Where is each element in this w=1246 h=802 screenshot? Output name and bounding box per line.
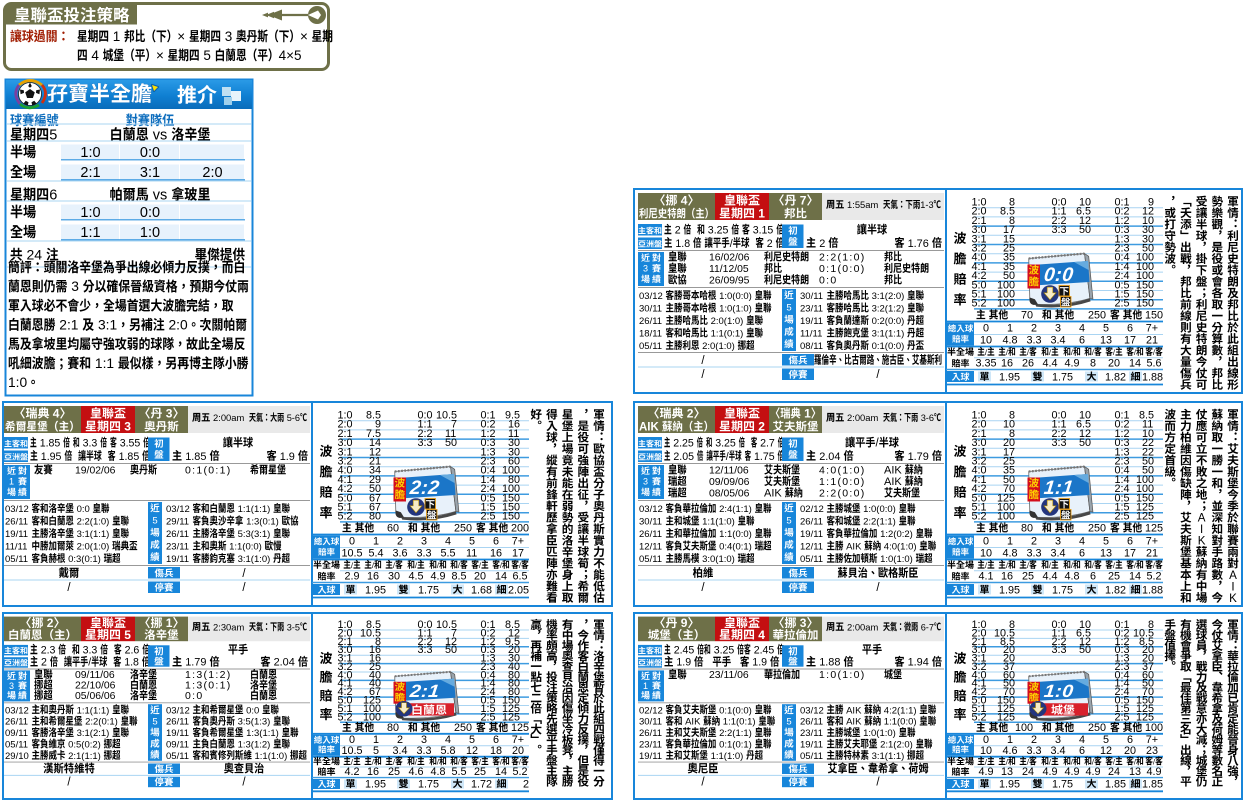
svg-text:5: 5 <box>124 628 131 642</box>
svg-text:1:0(0:0): 1:0(0:0) <box>863 504 896 515</box>
svg-text:26/11: 26/11 <box>800 717 823 728</box>
svg-text:1:1(0:0): 1:1(0:0) <box>819 476 866 488</box>
svg-text:24: 24 <box>27 247 43 263</box>
svg-text:3: 3 <box>1055 536 1061 548</box>
svg-text:4: 4 <box>445 536 451 548</box>
svg-text:03/12: 03/12 <box>639 504 663 515</box>
svg-text:3.3: 3.3 <box>83 438 98 450</box>
svg-text:3:3: 3:3 <box>1052 644 1067 656</box>
svg-text:2:4(1:1): 2:4(1:1) <box>719 504 752 515</box>
svg-text:50: 50 <box>1079 644 1091 656</box>
svg-text:1.76: 1.76 <box>908 238 929 250</box>
svg-text:1:1(1:0): 1:1(1:0) <box>702 517 735 528</box>
svg-text:2: 2 <box>819 238 825 250</box>
svg-text:5: 5 <box>152 717 157 728</box>
svg-text:2:00am: 2:00am <box>847 621 878 632</box>
svg-text:5: 5 <box>1103 536 1109 548</box>
svg-text:60: 60 <box>387 523 399 535</box>
svg-text:3: 3 <box>9 681 14 691</box>
svg-text:0:1(0:1): 0:1(0:1) <box>719 740 752 751</box>
svg-text:1:0: 1:0 <box>1043 681 1075 701</box>
svg-text:0: 0 <box>349 536 355 548</box>
svg-text:AIK: AIK <box>884 465 902 477</box>
svg-text:02/12: 02/12 <box>639 705 663 716</box>
svg-text:2.25: 2.25 <box>673 438 694 450</box>
svg-text:03/12: 03/12 <box>639 291 663 302</box>
svg-text:16: 16 <box>367 766 379 778</box>
svg-text:150: 150 <box>1136 298 1154 310</box>
svg-text:24: 24 <box>1108 766 1120 778</box>
svg-text:2.7: 2.7 <box>760 438 775 450</box>
svg-text:3:0(1:0): 3:0(1:0) <box>702 554 735 565</box>
svg-text:0:0: 0:0 <box>140 145 160 161</box>
svg-text:1:1(0:0): 1:1(0:0) <box>229 542 262 553</box>
svg-text:7: 7 <box>800 194 807 208</box>
svg-text:30/11: 30/11 <box>639 717 662 728</box>
svg-text:3: 3 <box>643 264 648 274</box>
svg-text:9: 9 <box>681 616 688 630</box>
svg-text:4.8: 4.8 <box>1003 548 1018 560</box>
svg-text:1:0(0:0): 1:0(0:0) <box>719 291 752 302</box>
svg-text:2:1: 2:1 <box>80 165 100 181</box>
svg-text:1:1(0:0): 1:1(0:0) <box>719 529 752 540</box>
svg-text:11/11: 11/11 <box>800 329 822 340</box>
svg-text:1: 1 <box>804 407 811 421</box>
svg-text:0:1(0:0): 0:1(0:0) <box>719 705 752 716</box>
svg-text:/: / <box>726 451 729 463</box>
svg-text:1.88: 1.88 <box>1142 371 1163 383</box>
svg-text:12/11: 12/11 <box>800 542 823 553</box>
svg-text:1: 1 <box>9 477 14 487</box>
svg-text:23/11: 23/11 <box>800 728 823 739</box>
svg-text:2:2: 2:2 <box>408 477 441 499</box>
svg-text:1.8: 1.8 <box>124 657 139 669</box>
svg-text:1:3(1:1): 1:3(1:1) <box>246 728 279 739</box>
svg-text:AIK: AIK <box>764 488 782 500</box>
svg-text:24: 24 <box>1022 766 1034 778</box>
svg-text:1:0: 1:0 <box>140 225 160 241</box>
svg-text:5: 5 <box>469 536 475 548</box>
svg-text:13: 13 <box>1001 766 1013 778</box>
svg-text:2:0: 2:0 <box>202 165 222 181</box>
svg-text:1-3: 1-3 <box>920 200 933 210</box>
svg-text:5: 5 <box>203 48 211 63</box>
svg-text:1: 1 <box>1007 323 1013 335</box>
svg-text:3.3: 3.3 <box>1027 548 1042 560</box>
svg-text:2.9: 2.9 <box>345 571 360 583</box>
svg-text:1:0(1:0): 1:0(1:0) <box>719 304 752 315</box>
svg-text:6: 6 <box>1079 335 1085 347</box>
svg-text:2:2(1:1): 2:2(1:1) <box>863 517 896 528</box>
svg-text:7+: 7+ <box>512 536 524 548</box>
svg-text:05/11: 05/11 <box>5 740 28 751</box>
svg-text:70: 70 <box>1021 310 1033 322</box>
svg-text:19/11: 19/11 <box>800 740 823 751</box>
svg-text:1:1(1:1): 1:1(1:1) <box>77 705 110 716</box>
svg-text:0:5(0:2): 0:5(0:2) <box>68 740 101 751</box>
svg-text:1.75: 1.75 <box>754 451 775 463</box>
svg-text:05/11: 05/11 <box>5 554 28 565</box>
svg-text:2:5: 2:5 <box>1115 298 1130 310</box>
svg-text:2:5: 2:5 <box>481 711 496 723</box>
svg-text:2.45: 2.45 <box>674 645 695 657</box>
svg-text:26/11: 26/11 <box>639 316 662 327</box>
svg-text:3:1(1:1): 3:1(1:1) <box>872 329 905 340</box>
svg-text:22/10/06: 22/10/06 <box>75 681 116 692</box>
svg-text:6: 6 <box>493 536 499 548</box>
svg-text:21: 21 <box>1146 548 1158 560</box>
svg-text:1.8: 1.8 <box>675 238 690 250</box>
svg-text:2: 2 <box>41 657 47 669</box>
svg-text:1:1: 1:1 <box>95 356 114 371</box>
svg-text:3.25: 3.25 <box>715 438 736 450</box>
svg-text:3: 3 <box>1055 323 1061 335</box>
svg-text:2: 2 <box>1031 536 1037 548</box>
svg-text:23/11: 23/11 <box>800 304 823 315</box>
svg-text:1.75: 1.75 <box>1052 584 1073 596</box>
svg-text:05/11: 05/11 <box>639 554 662 565</box>
svg-text:1.85: 1.85 <box>40 438 61 450</box>
svg-text:09/11: 09/11 <box>5 728 28 739</box>
svg-text:0:2(0:0): 0:2(0:0) <box>872 316 905 327</box>
svg-text:200: 200 <box>511 523 529 535</box>
svg-text:1.88: 1.88 <box>1142 584 1163 596</box>
svg-text:17: 17 <box>1124 335 1136 347</box>
svg-text:1: 1 <box>643 681 648 691</box>
svg-text:4.8: 4.8 <box>1065 571 1080 583</box>
svg-text:3.3: 3.3 <box>83 645 98 657</box>
svg-text:19/11: 19/11 <box>639 751 662 762</box>
svg-text:03/12: 03/12 <box>5 705 29 716</box>
svg-text:1:0(1:0): 1:0(1:0) <box>819 669 866 681</box>
svg-text:18: 18 <box>490 745 502 757</box>
svg-text:3.15: 3.15 <box>753 225 774 237</box>
svg-text:250: 250 <box>454 523 472 535</box>
svg-text:4: 4 <box>681 194 688 208</box>
svg-text:4.9: 4.9 <box>1147 766 1162 778</box>
svg-text:4.4: 4.4 <box>1043 358 1058 370</box>
svg-text:12/11: 12/11 <box>639 542 662 553</box>
svg-text:80: 80 <box>1021 523 1033 535</box>
svg-text:×: × <box>156 48 164 63</box>
svg-text:1:55am: 1:55am <box>847 199 878 210</box>
svg-text:0:0: 0:0 <box>1043 264 1075 286</box>
svg-text:6: 6 <box>1079 745 1085 757</box>
svg-text:4: 4 <box>1079 323 1085 335</box>
svg-text:05/11: 05/11 <box>639 341 662 352</box>
svg-text:3-5: 3-5 <box>287 622 300 632</box>
svg-text:2:2(1:1): 2:2(1:1) <box>719 728 752 739</box>
svg-text:20: 20 <box>1108 358 1120 370</box>
svg-text:30/11: 30/11 <box>639 517 662 528</box>
svg-text:4.6: 4.6 <box>409 766 424 778</box>
svg-text:125: 125 <box>997 711 1015 723</box>
svg-text:125: 125 <box>1145 523 1163 535</box>
svg-text:0:0: 0:0 <box>246 705 259 716</box>
svg-text:2:30am: 2:30am <box>213 621 244 632</box>
svg-text:1:1(1:0): 1:1(1:0) <box>255 751 288 762</box>
svg-text:25: 25 <box>474 766 486 778</box>
svg-text:2:2(1:0): 2:2(1:0) <box>819 252 866 264</box>
svg-text:100: 100 <box>1015 722 1033 734</box>
svg-text:6: 6 <box>1127 536 1133 548</box>
svg-text:2.04: 2.04 <box>819 451 840 463</box>
svg-text:2: 2 <box>675 225 681 237</box>
svg-text:/: / <box>88 657 91 669</box>
svg-text:5:2: 5:2 <box>972 511 987 523</box>
svg-text:26/11: 26/11 <box>166 529 189 540</box>
svg-text:03/12: 03/12 <box>166 504 190 515</box>
svg-text:23/11/06: 23/11/06 <box>709 670 749 681</box>
svg-text:3.3: 3.3 <box>417 548 432 560</box>
svg-text:150: 150 <box>502 511 520 523</box>
svg-text:7+: 7+ <box>1146 536 1158 548</box>
svg-text:6: 6 <box>1079 548 1085 560</box>
svg-text:02/12: 02/12 <box>800 504 824 515</box>
svg-text:13: 13 <box>1100 548 1112 560</box>
svg-text:4:0(1:0): 4:0(1:0) <box>884 542 917 553</box>
svg-text:4.4: 4.4 <box>1043 571 1058 583</box>
svg-text:4.8: 4.8 <box>431 766 446 778</box>
svg-text:26/11: 26/11 <box>800 517 823 528</box>
svg-text:0:0: 0:0 <box>819 275 838 287</box>
svg-text:0:1(0:0): 0:1(0:0) <box>819 263 866 275</box>
svg-text:1.9: 1.9 <box>280 451 295 463</box>
svg-text:25: 25 <box>1022 571 1034 583</box>
svg-text:3:1(2:1): 3:1(2:1) <box>77 728 110 739</box>
svg-text:1.75: 1.75 <box>1052 371 1073 383</box>
svg-text:10: 10 <box>980 745 992 757</box>
svg-text:1:2(0:2): 1:2(0:2) <box>880 529 913 540</box>
svg-text:3:5(1:3): 3:5(1:3) <box>238 717 271 728</box>
svg-text:26/11: 26/11 <box>5 717 28 728</box>
svg-text:10.5: 10.5 <box>342 745 363 757</box>
svg-text:3: 3 <box>166 407 173 421</box>
svg-text:6-7: 6-7 <box>921 622 934 632</box>
svg-text:4:0(1:0): 4:0(1:0) <box>819 465 866 477</box>
svg-text:4: 4 <box>758 628 765 642</box>
svg-text:2:1: 2:1 <box>408 681 441 701</box>
svg-text:0:1(0:1): 0:1(0:1) <box>185 465 232 477</box>
svg-text:16: 16 <box>1001 571 1013 583</box>
svg-text:4.6: 4.6 <box>1003 745 1018 757</box>
svg-text:2:0(1:0): 2:0(1:0) <box>702 341 735 352</box>
svg-text:3.55: 3.55 <box>120 438 141 450</box>
svg-text:19/11: 19/11 <box>5 529 28 540</box>
svg-text:11/12/05: 11/12/05 <box>709 264 749 275</box>
svg-text:5.8: 5.8 <box>441 745 456 757</box>
svg-text:100: 100 <box>997 511 1015 523</box>
svg-text:3:3: 3:3 <box>1052 224 1067 236</box>
svg-text:1:0: 1:0 <box>80 145 100 161</box>
svg-text:100: 100 <box>997 298 1015 310</box>
svg-text:0:3(0:1): 0:3(0:1) <box>68 554 101 565</box>
svg-text:1:1(1:1): 1:1(1:1) <box>238 504 271 515</box>
svg-text:1:1(0:1): 1:1(0:1) <box>723 717 756 728</box>
svg-text:K: K <box>1229 592 1237 605</box>
svg-text:1:0(1:0): 1:0(1:0) <box>880 554 913 565</box>
svg-text:8.5: 8.5 <box>452 571 467 583</box>
svg-text:19/11: 19/11 <box>800 529 823 540</box>
svg-text:3:3: 3:3 <box>1052 437 1067 449</box>
svg-text:AIK: AIK <box>846 705 862 716</box>
svg-text:30/11: 30/11 <box>800 291 823 302</box>
svg-text:1: 1 <box>373 536 379 548</box>
svg-text:1:1(1:0): 1:1(1:0) <box>711 751 744 762</box>
svg-text:29/10: 29/10 <box>5 751 29 762</box>
svg-text:5: 5 <box>373 745 379 757</box>
svg-text:5:2: 5:2 <box>338 511 353 523</box>
svg-text:×: × <box>300 29 308 44</box>
svg-text:2:1(1:1): 2:1(1:1) <box>68 751 101 762</box>
svg-text:2:2(1:0): 2:2(1:0) <box>77 517 110 528</box>
svg-text:150: 150 <box>1145 310 1163 322</box>
svg-text:09/11/06: 09/11/06 <box>75 670 115 681</box>
svg-text:2: 2 <box>1031 323 1037 335</box>
svg-text:14: 14 <box>495 571 507 583</box>
svg-text:3.4: 3.4 <box>393 745 408 757</box>
svg-text:1.95: 1.95 <box>365 584 386 596</box>
svg-text:2: 2 <box>758 420 765 434</box>
svg-text:14: 14 <box>1129 571 1141 583</box>
svg-text:0: 0 <box>983 323 989 335</box>
svg-text:2:0(1:0): 2:0(1:0) <box>711 316 744 327</box>
svg-text:16: 16 <box>490 548 502 560</box>
svg-text:/: / <box>730 238 733 250</box>
svg-text:5.5: 5.5 <box>441 548 456 560</box>
svg-text:5.5: 5.5 <box>452 766 467 778</box>
svg-text:17: 17 <box>512 548 524 560</box>
svg-text:4:2(1:1): 4:2(1:1) <box>884 705 917 716</box>
svg-text:14: 14 <box>1129 358 1141 370</box>
svg-text:25: 25 <box>1108 571 1120 583</box>
svg-text:12/11/06: 12/11/06 <box>709 466 749 477</box>
svg-text:2: 2 <box>47 616 54 630</box>
svg-text:10: 10 <box>980 548 992 560</box>
svg-text:50: 50 <box>1079 437 1091 449</box>
svg-text:2: 2 <box>767 238 773 250</box>
svg-text:1:0(1:0): 1:0(1:0) <box>863 728 896 739</box>
svg-text:26/11: 26/11 <box>639 529 662 540</box>
svg-text:10: 10 <box>980 335 992 347</box>
svg-text:21: 21 <box>1146 335 1158 347</box>
svg-text:4: 4 <box>1079 536 1085 548</box>
svg-text:19/11: 19/11 <box>166 728 189 739</box>
svg-text:03/12: 03/12 <box>5 504 29 515</box>
svg-text:3:1: 3:1 <box>98 318 117 333</box>
svg-text:5: 5 <box>786 717 791 728</box>
svg-text:2:00am: 2:00am <box>847 412 878 423</box>
svg-text:3.35: 3.35 <box>976 358 997 370</box>
svg-text:1:0: 1:0 <box>80 205 100 221</box>
svg-text:05/11: 05/11 <box>166 751 189 762</box>
svg-text:250: 250 <box>454 722 472 734</box>
svg-text:19/11: 19/11 <box>800 316 823 327</box>
svg-text:09/09/06: 09/09/06 <box>709 477 750 488</box>
svg-text:1: 1 <box>758 207 765 221</box>
svg-text:1:3(1:2): 1:3(1:2) <box>238 740 271 751</box>
svg-text:3.25: 3.25 <box>714 645 735 657</box>
svg-text:4.1: 4.1 <box>979 571 994 583</box>
svg-text:5:3(3:1): 5:3(3:1) <box>238 529 271 540</box>
svg-text:5.4: 5.4 <box>369 548 384 560</box>
svg-text:250: 250 <box>1088 310 1106 322</box>
svg-text:1.88: 1.88 <box>819 657 840 669</box>
svg-text:16/02/06: 16/02/06 <box>709 253 750 264</box>
svg-text:3: 3 <box>124 420 131 434</box>
svg-text:2:2(0:0): 2:2(0:0) <box>819 488 866 500</box>
svg-text:2.6: 2.6 <box>125 645 140 657</box>
svg-text:4.2: 4.2 <box>345 766 360 778</box>
svg-text:5.2: 5.2 <box>513 766 528 778</box>
svg-text:0:1(0:0): 0:1(0:0) <box>872 341 905 352</box>
svg-text:1:3(0:1): 1:3(0:1) <box>246 517 279 528</box>
svg-text:3.4: 3.4 <box>1051 745 1066 757</box>
svg-text:2:1: 2:1 <box>59 318 78 333</box>
svg-text:2.3: 2.3 <box>41 645 56 657</box>
svg-text:3.4: 3.4 <box>1051 335 1066 347</box>
svg-text:3:3: 3:3 <box>418 437 433 449</box>
svg-text:3:1(1:0): 3:1(1:0) <box>238 554 271 565</box>
svg-text:4.9: 4.9 <box>979 766 994 778</box>
svg-text:4: 4 <box>53 407 60 421</box>
svg-text:0: 0 <box>983 536 989 548</box>
svg-text:25: 25 <box>388 766 400 778</box>
svg-text:4: 4 <box>91 48 99 63</box>
svg-text:3:2(1:2): 3:2(1:2) <box>872 304 905 315</box>
svg-text:2: 2 <box>687 407 694 421</box>
svg-text:3.3: 3.3 <box>417 745 432 757</box>
svg-text:2: 2 <box>523 779 529 791</box>
svg-text:03/12: 03/12 <box>800 705 824 716</box>
svg-text:26: 26 <box>1022 358 1034 370</box>
svg-text:100: 100 <box>363 711 381 723</box>
svg-text:1.75: 1.75 <box>418 779 439 791</box>
svg-text:3: 3 <box>643 477 648 487</box>
svg-text:1.85: 1.85 <box>1142 779 1163 791</box>
svg-text:4.9: 4.9 <box>431 571 446 583</box>
svg-text:20: 20 <box>1124 745 1136 757</box>
svg-text:3: 3 <box>800 616 807 630</box>
svg-text:3-6: 3-6 <box>921 413 934 423</box>
svg-text:19/11: 19/11 <box>166 554 189 565</box>
svg-text:23/11: 23/11 <box>639 740 662 751</box>
svg-text:1:1(0:0): 1:1(0:0) <box>884 717 917 728</box>
svg-text:1.85: 1.85 <box>1105 779 1126 791</box>
svg-text:1.72: 1.72 <box>471 779 492 791</box>
svg-text:14: 14 <box>495 766 507 778</box>
svg-text:7+: 7+ <box>1146 323 1158 335</box>
svg-text:5: 5 <box>786 516 791 527</box>
svg-text:26/11: 26/11 <box>639 728 662 739</box>
svg-text:2:1(2:0): 2:1(2:0) <box>880 740 913 751</box>
svg-text:08/11: 08/11 <box>800 341 823 352</box>
svg-text:0:0: 0:0 <box>185 690 204 702</box>
svg-text:1.94: 1.94 <box>908 657 929 669</box>
svg-text:3:1: 3:1 <box>140 165 160 181</box>
svg-text:1:0: 1:0 <box>8 375 28 390</box>
svg-text:2.05: 2.05 <box>673 451 694 463</box>
svg-text:0:0: 0:0 <box>77 504 90 515</box>
svg-text:3:3: 3:3 <box>418 644 433 656</box>
svg-text:50: 50 <box>445 437 457 449</box>
svg-text:2.45: 2.45 <box>754 645 775 657</box>
svg-text:4.8: 4.8 <box>1003 335 1018 347</box>
svg-text:0:0: 0:0 <box>140 205 160 221</box>
svg-text:3: 3 <box>225 29 233 44</box>
svg-text:1.68: 1.68 <box>471 584 492 596</box>
svg-text:12: 12 <box>1100 745 1112 757</box>
